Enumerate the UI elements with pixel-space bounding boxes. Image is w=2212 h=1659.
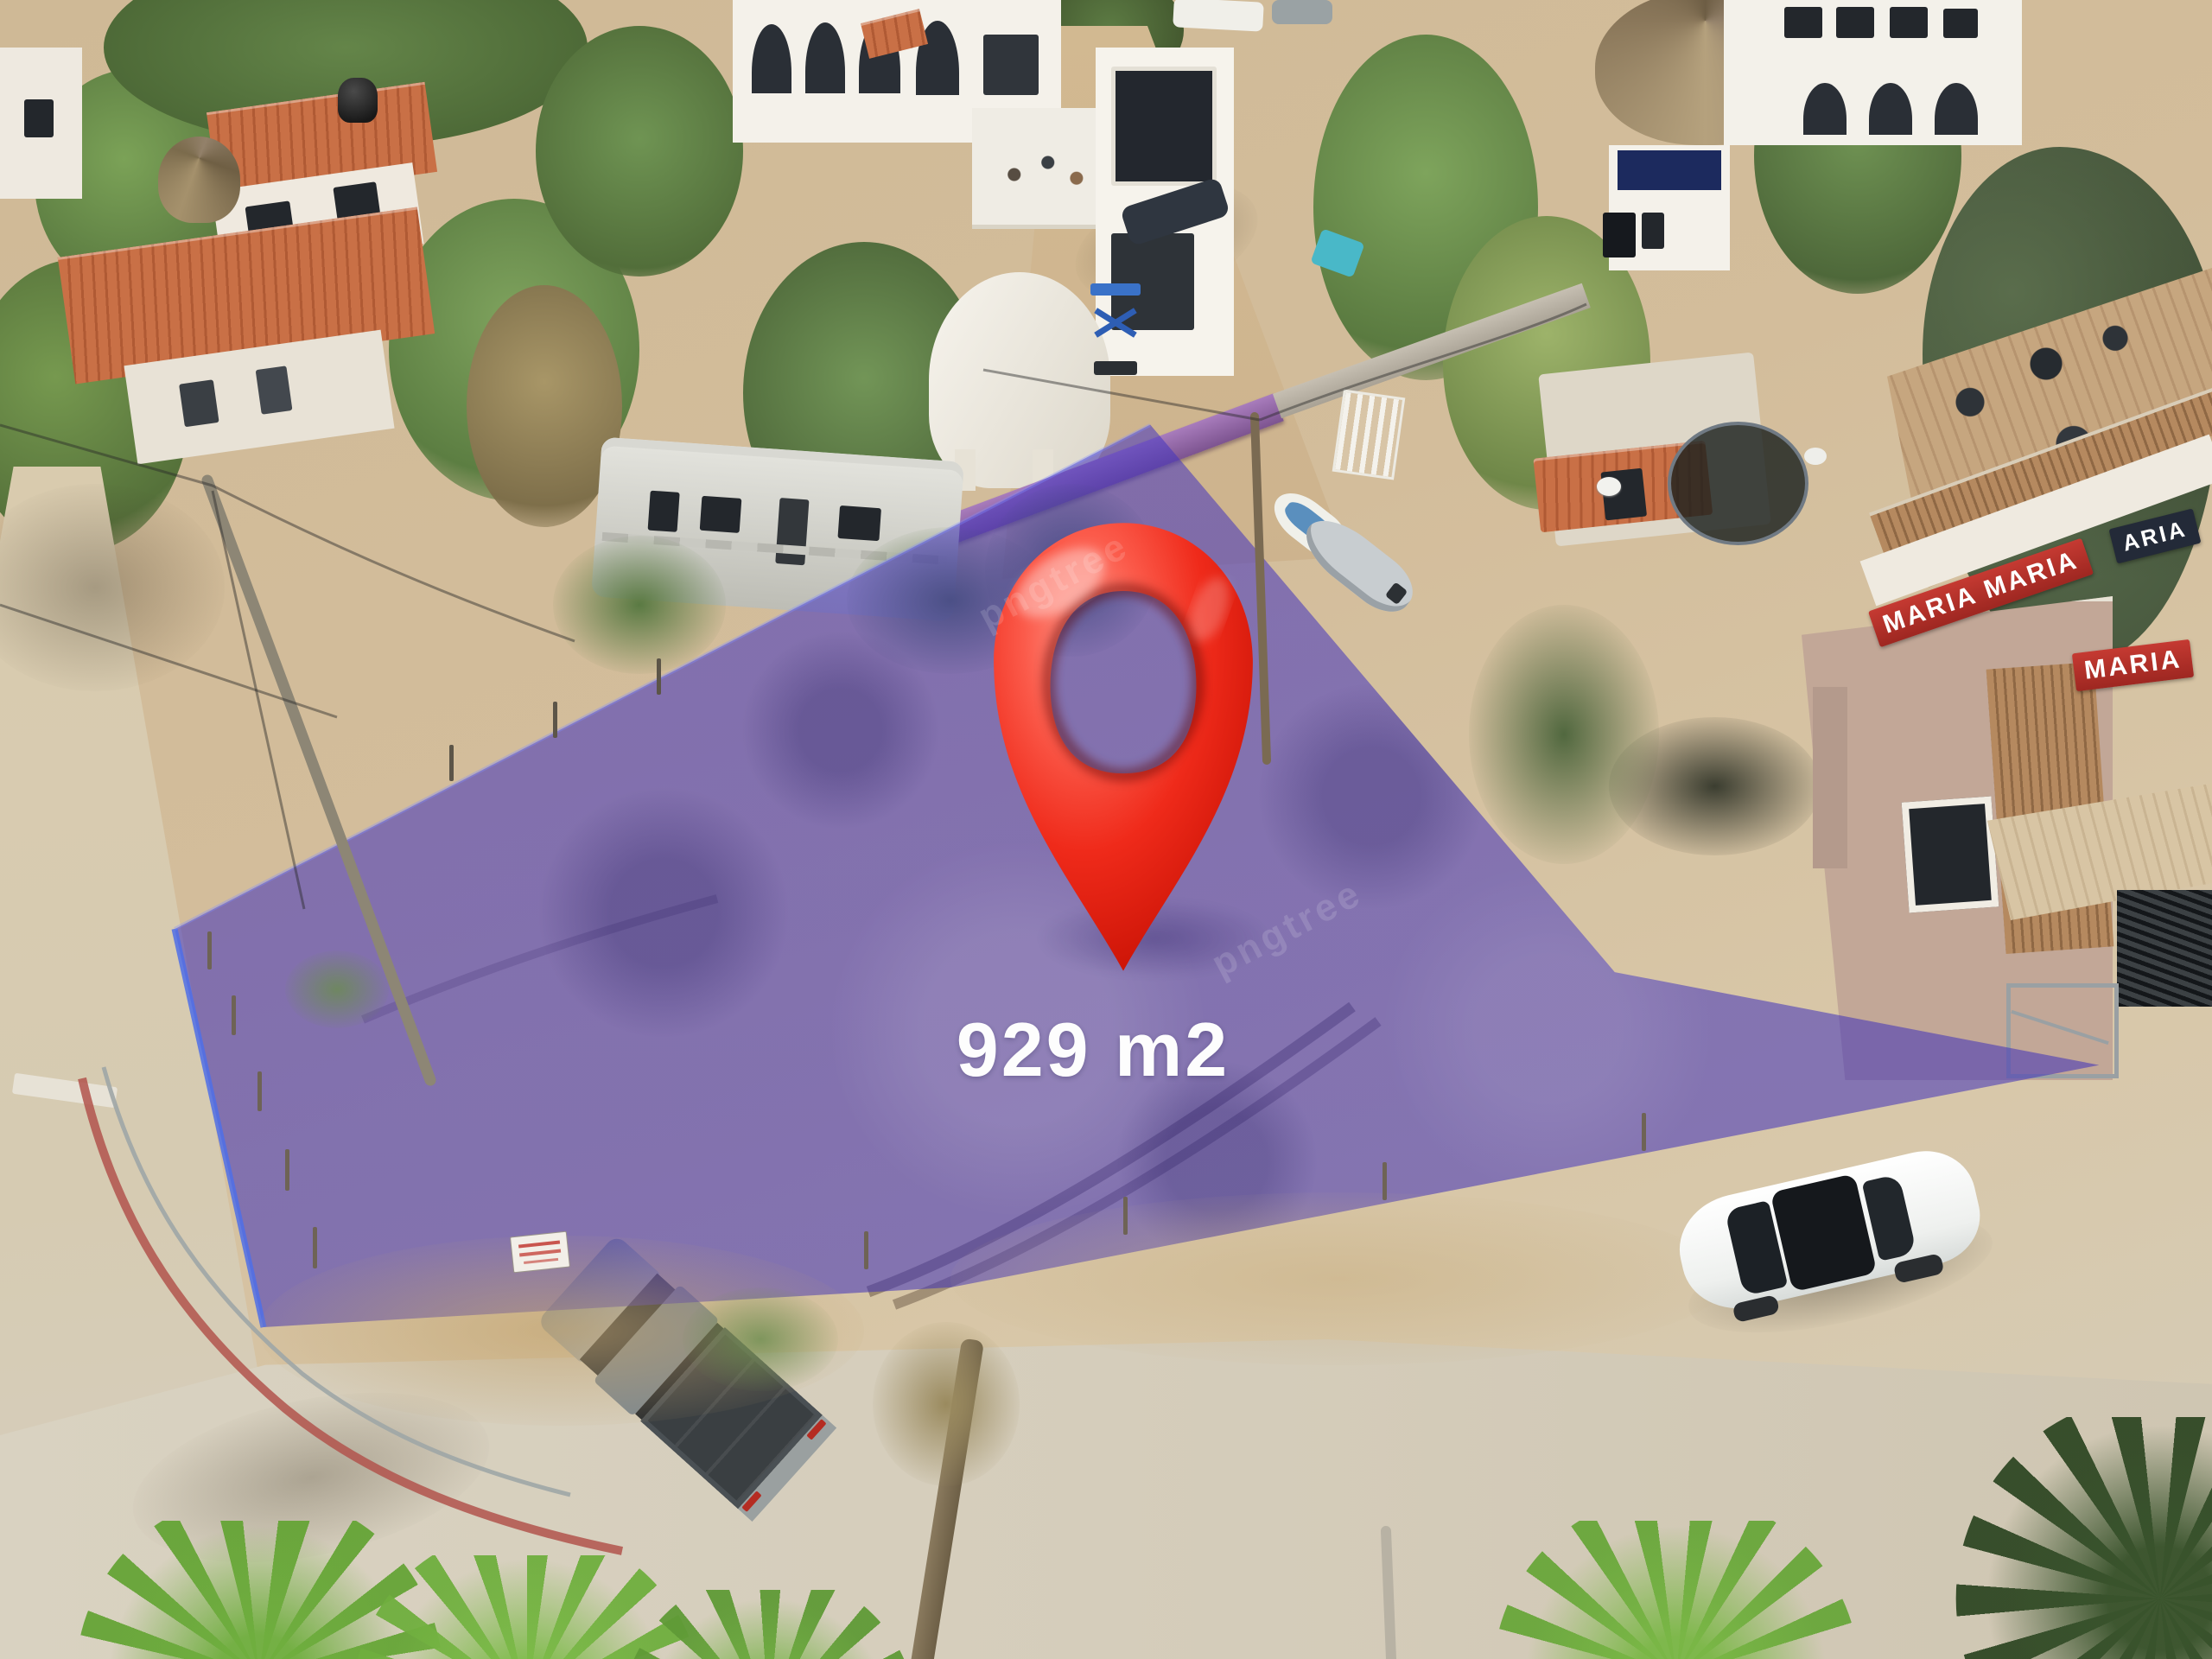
utility-pole — [1386, 1531, 1391, 1659]
power-lines — [0, 304, 1586, 909]
red-curb — [82, 1078, 622, 1551]
dead-palm-fronds — [873, 1322, 1020, 1486]
area-label: 929 m2 — [868, 1006, 1318, 1094]
guardrail — [104, 1067, 570, 1495]
utility-pole — [207, 480, 430, 1080]
aerial-photo: 929 m2 MARIA MARIA MARIA ARIA pngtree pn… — [0, 0, 2212, 1659]
